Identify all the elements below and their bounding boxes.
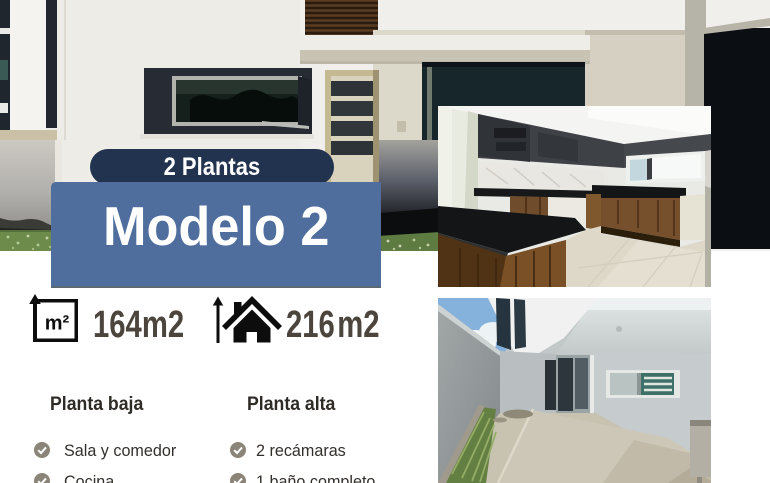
svg-text:m²: m²	[45, 313, 70, 335]
